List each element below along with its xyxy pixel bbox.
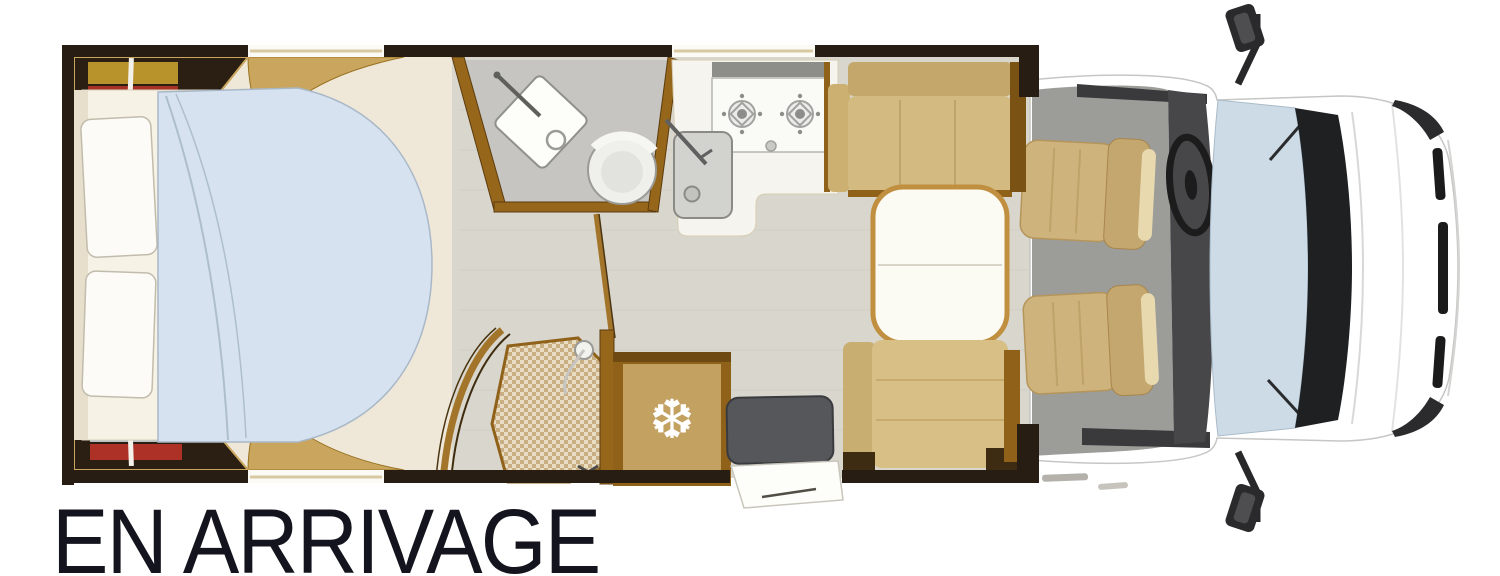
wall-left — [62, 45, 74, 485]
wall-bottom-1 — [62, 470, 248, 483]
duvet — [158, 88, 432, 442]
bench-backrest — [848, 62, 1012, 96]
side-mirror-bottom — [1224, 452, 1266, 534]
wall-top-1 — [62, 45, 248, 57]
bench2-backrest — [843, 342, 877, 462]
books-red-2 — [90, 444, 182, 460]
pillow-bottom — [82, 271, 156, 398]
dinette-bench-top — [824, 62, 1026, 197]
bench-armrest — [828, 84, 850, 192]
fridge-cabinet: ❆ — [613, 352, 731, 486]
cab — [1019, 2, 1459, 533]
wall-end-top — [1019, 45, 1039, 97]
snowflake-icon: ❆ — [649, 388, 694, 451]
kitchen-sink — [666, 120, 732, 218]
pillow-top — [80, 116, 157, 257]
island-bed — [74, 88, 432, 442]
floorplan-image: ❆ — [0, 0, 1500, 576]
shower-wall-right — [600, 330, 614, 484]
caption-en-arrivage: EN ARRIVAGE — [52, 496, 599, 576]
windshield — [1210, 100, 1308, 436]
bench-seat — [848, 96, 1012, 192]
dinette-bench-bottom — [843, 340, 1020, 474]
dark-cabinet — [726, 396, 833, 464]
passenger-seat — [1022, 284, 1160, 401]
stove-knob — [766, 141, 776, 151]
wall-top-2 — [384, 45, 672, 57]
driver-seat — [1019, 134, 1157, 251]
entry-door — [731, 461, 843, 508]
wall-bottom-2 — [384, 470, 730, 483]
wall-end-bottom — [1017, 424, 1039, 483]
wall-bottom-3 — [842, 470, 1038, 483]
side-mirror-top — [1224, 2, 1266, 84]
motorhome-floorplan: ❆ — [0, 0, 1500, 576]
entry-step-marks — [1042, 473, 1128, 490]
dinette-table — [873, 187, 1007, 343]
toilet — [588, 136, 656, 204]
wall-top-3 — [815, 45, 1037, 57]
sink-drain — [685, 187, 700, 202]
bedroom — [74, 57, 452, 470]
